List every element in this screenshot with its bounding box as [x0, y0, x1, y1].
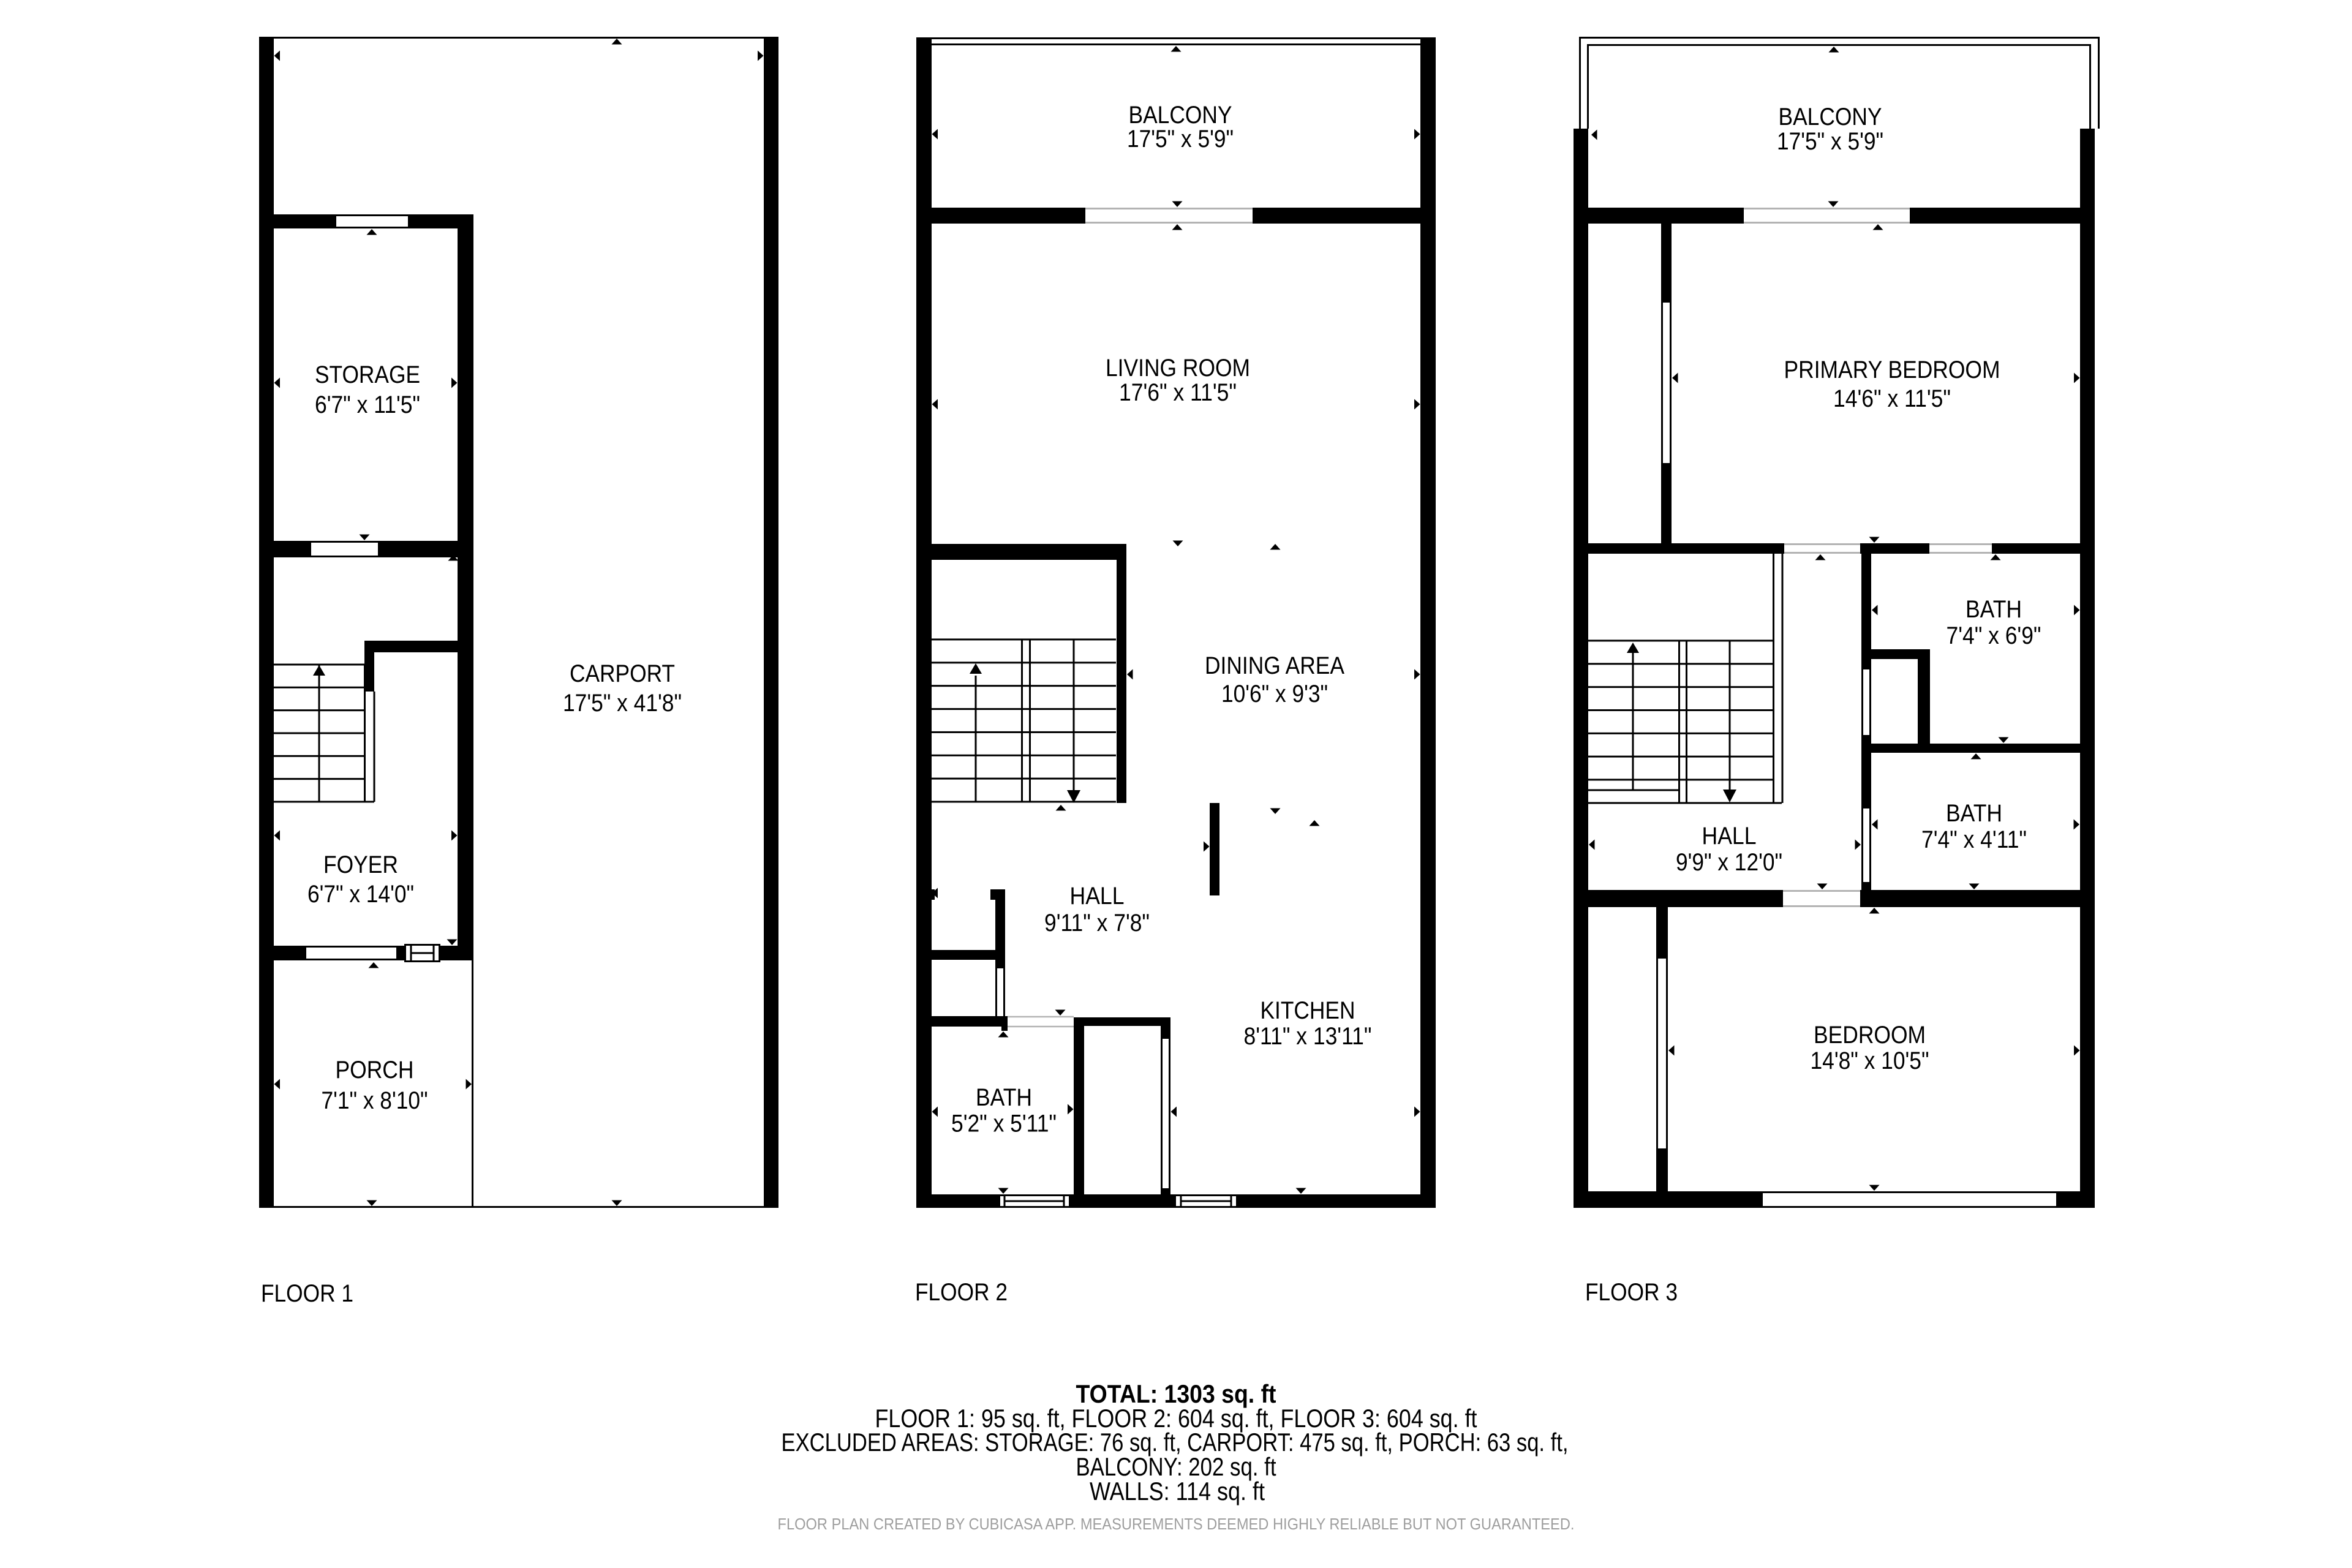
svg-text:PORCH: PORCH [336, 1057, 414, 1084]
svg-text:17'6" x 11'5": 17'6" x 11'5" [1119, 379, 1237, 406]
svg-text:9'9" x 12'0": 9'9" x 12'0" [1676, 849, 1782, 876]
svg-text:14'6" x 11'5": 14'6" x 11'5" [1833, 385, 1951, 412]
svg-text:7'4" x 6'9": 7'4" x 6'9" [1947, 622, 2041, 649]
svg-text:9'11" x 7'8": 9'11" x 7'8" [1044, 910, 1150, 937]
svg-text:BALCONY: BALCONY [1129, 102, 1232, 129]
svg-text:BEDROOM: BEDROOM [1814, 1022, 1926, 1049]
svg-text:17'5" x 5'9": 17'5" x 5'9" [1777, 128, 1883, 155]
svg-text:6'7" x 14'0": 6'7" x 14'0" [307, 881, 414, 908]
svg-text:7'4" x 4'11": 7'4" x 4'11" [1921, 826, 2027, 853]
svg-text:BATH: BATH [976, 1084, 1032, 1111]
svg-text:HALL: HALL [1702, 823, 1757, 850]
svg-text:STORAGE: STORAGE [315, 361, 420, 388]
svg-text:BATH: BATH [1966, 596, 2022, 623]
svg-text:14'8" x 10'5": 14'8" x 10'5" [1811, 1047, 1929, 1074]
svg-text:5'2" x 5'11": 5'2" x 5'11" [951, 1110, 1057, 1137]
svg-text:LIVING ROOM: LIVING ROOM [1106, 355, 1250, 382]
svg-text:17'5" x 41'8": 17'5" x 41'8" [563, 690, 682, 717]
svg-text:10'6" x 9'3": 10'6" x 9'3" [1221, 680, 1328, 707]
svg-text:FLOOR PLAN CREATED BY CUBICASA: FLOOR PLAN CREATED BY CUBICASA APP. MEAS… [778, 1515, 1575, 1533]
svg-text:8'11" x 13'11": 8'11" x 13'11" [1244, 1023, 1372, 1050]
svg-text:PRIMARY BEDROOM: PRIMARY BEDROOM [1784, 356, 2000, 383]
svg-text:FLOOR 3: FLOOR 3 [1585, 1279, 1678, 1306]
svg-text:BALCONY: BALCONY [1779, 104, 1882, 130]
svg-text:CARPORT: CARPORT [570, 660, 675, 687]
svg-text:17'5" x 5'9": 17'5" x 5'9" [1127, 126, 1234, 153]
svg-text:HALL: HALL [1070, 883, 1125, 910]
svg-text:DINING AREA: DINING AREA [1205, 652, 1344, 679]
svg-text:FLOOR 2: FLOOR 2 [915, 1279, 1008, 1306]
svg-text:6'7" x 11'5": 6'7" x 11'5" [315, 391, 420, 418]
svg-text:7'1" x 8'10": 7'1" x 8'10" [322, 1087, 428, 1114]
svg-text:WALLS: 114 sq. ft: WALLS: 114 sq. ft [1090, 1477, 1265, 1506]
svg-text:BATH: BATH [1946, 800, 2002, 827]
svg-text:KITCHEN: KITCHEN [1261, 997, 1355, 1024]
svg-text:FLOOR 1: FLOOR 1 [261, 1280, 353, 1307]
svg-text:FOYER: FOYER [323, 851, 398, 878]
